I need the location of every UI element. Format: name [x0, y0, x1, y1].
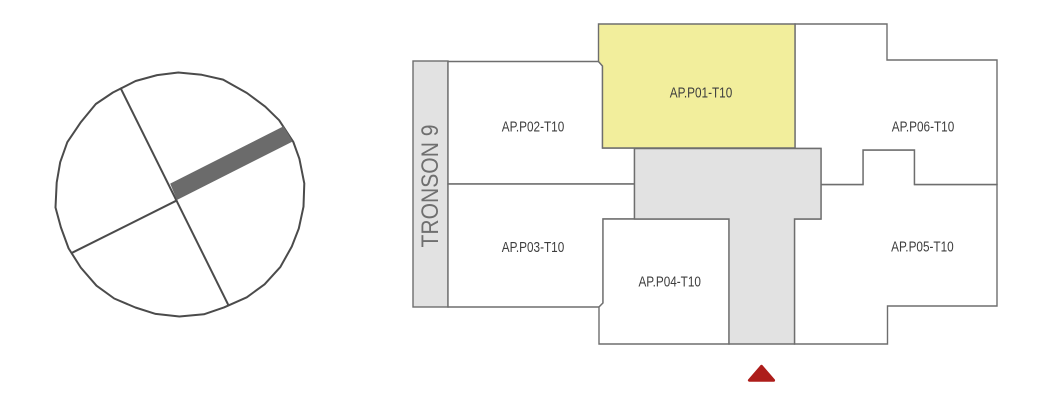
svg-text:AP.P03-T10: AP.P03-T10 [502, 240, 565, 256]
svg-text:TRONSON 9: TRONSON 9 [417, 125, 444, 248]
svg-text:AP.P01-T10: AP.P01-T10 [670, 86, 733, 102]
svg-text:AP.P06-T10: AP.P06-T10 [892, 120, 955, 136]
svg-text:AP.P02-T10: AP.P02-T10 [502, 120, 565, 136]
svg-text:AP.P04-T10: AP.P04-T10 [638, 275, 701, 291]
svg-text:AP.P05-T10: AP.P05-T10 [891, 240, 954, 256]
